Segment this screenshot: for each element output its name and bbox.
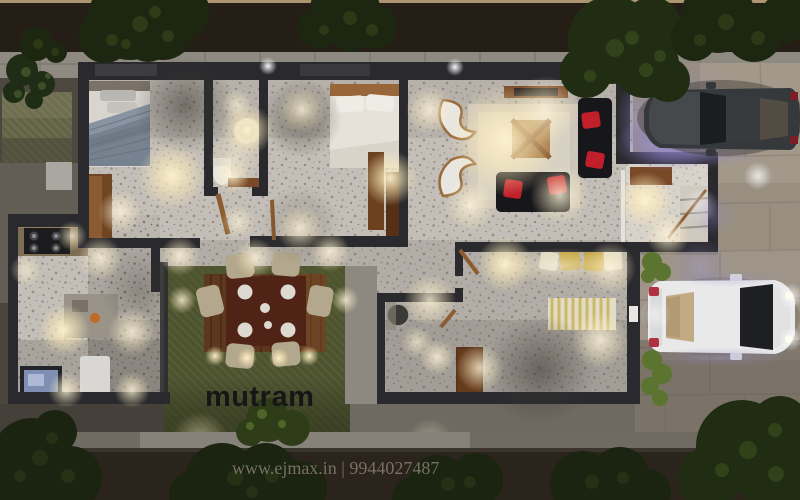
- svg-text:www.ejmax.in | 9944027487: www.ejmax.in | 9944027487: [232, 458, 439, 478]
- svg-text:mutram: mutram: [205, 381, 314, 413]
